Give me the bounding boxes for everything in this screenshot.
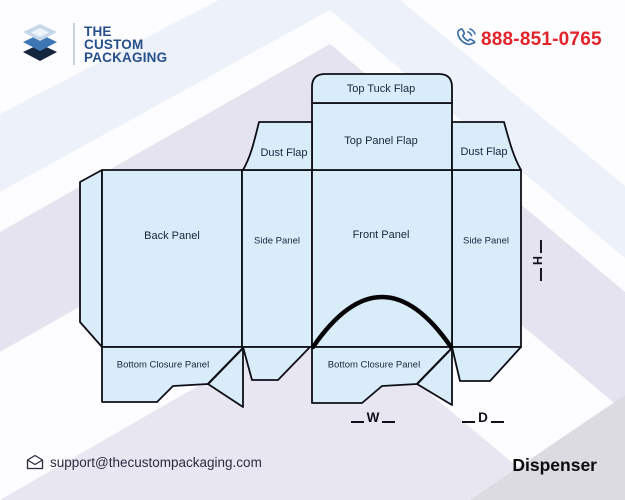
width-dimension-marker: W [346, 410, 400, 425]
top-tuck-flap-label: Top Tuck Flap [347, 83, 415, 95]
side-panel-left-label: Side Panel [254, 236, 300, 247]
dust-flap-left-label: Dust Flap [260, 147, 307, 159]
top-panel-flap-label: Top Panel Flap [344, 135, 417, 147]
envelope-icon [26, 454, 44, 470]
phone-icon [451, 27, 477, 53]
phone-contact[interactable]: 888-851-0765 [451, 27, 602, 53]
bottom-closure-back-label: Bottom Closure Panel [117, 360, 209, 371]
depth-dimension-marker: D [459, 410, 507, 425]
depth-dash-left [462, 419, 475, 423]
logo-wordmark: THE CUSTOM PACKAGING [84, 25, 167, 64]
side-panel-right-shape [452, 170, 521, 347]
support-email-text[interactable]: support@thecustompackaging.com [50, 455, 262, 470]
support-email[interactable]: support@thecustompackaging.com [26, 454, 262, 470]
side-panel-left-shape [242, 170, 312, 347]
height-letter: H [530, 256, 545, 265]
glue-flap-shape [80, 170, 102, 347]
dust-flap-right-label: Dust Flap [460, 146, 507, 158]
bottom-flap-left-shape [243, 347, 310, 380]
depth-dash-right [491, 419, 504, 423]
logo-line-1: THE [84, 25, 167, 38]
back-panel-label: Back Panel [144, 230, 200, 242]
width-letter: W [367, 410, 380, 425]
width-dash-left [351, 419, 364, 423]
bottom-closure-back-shape [102, 347, 243, 407]
height-dimension-marker: H [528, 240, 546, 286]
logo-layers-icon [16, 20, 64, 68]
bottom-closure-front-shape [312, 347, 452, 405]
height-tick-top [540, 240, 542, 253]
front-panel-label: Front Panel [353, 229, 410, 241]
back-panel-shape [102, 170, 242, 347]
logo-divider [73, 23, 75, 65]
product-name: Dispenser [512, 455, 597, 476]
height-tick-bottom [540, 268, 542, 281]
bottom-closure-front-label: Bottom Closure Panel [328, 360, 420, 371]
company-logo[interactable]: THE CUSTOM PACKAGING [16, 20, 167, 68]
side-panel-right-label: Side Panel [463, 236, 509, 247]
page: Top Tuck Flap Top Panel Flap Dust Flap D… [0, 0, 625, 500]
bottom-flap-right-shape [452, 347, 521, 381]
depth-letter: D [478, 410, 488, 425]
width-dash-right [382, 419, 395, 423]
dust-flap-left-shape [243, 122, 312, 170]
phone-number[interactable]: 888-851-0765 [481, 29, 602, 51]
logo-line-3: PACKAGING [84, 51, 167, 64]
logo-line-2: CUSTOM [84, 38, 167, 51]
